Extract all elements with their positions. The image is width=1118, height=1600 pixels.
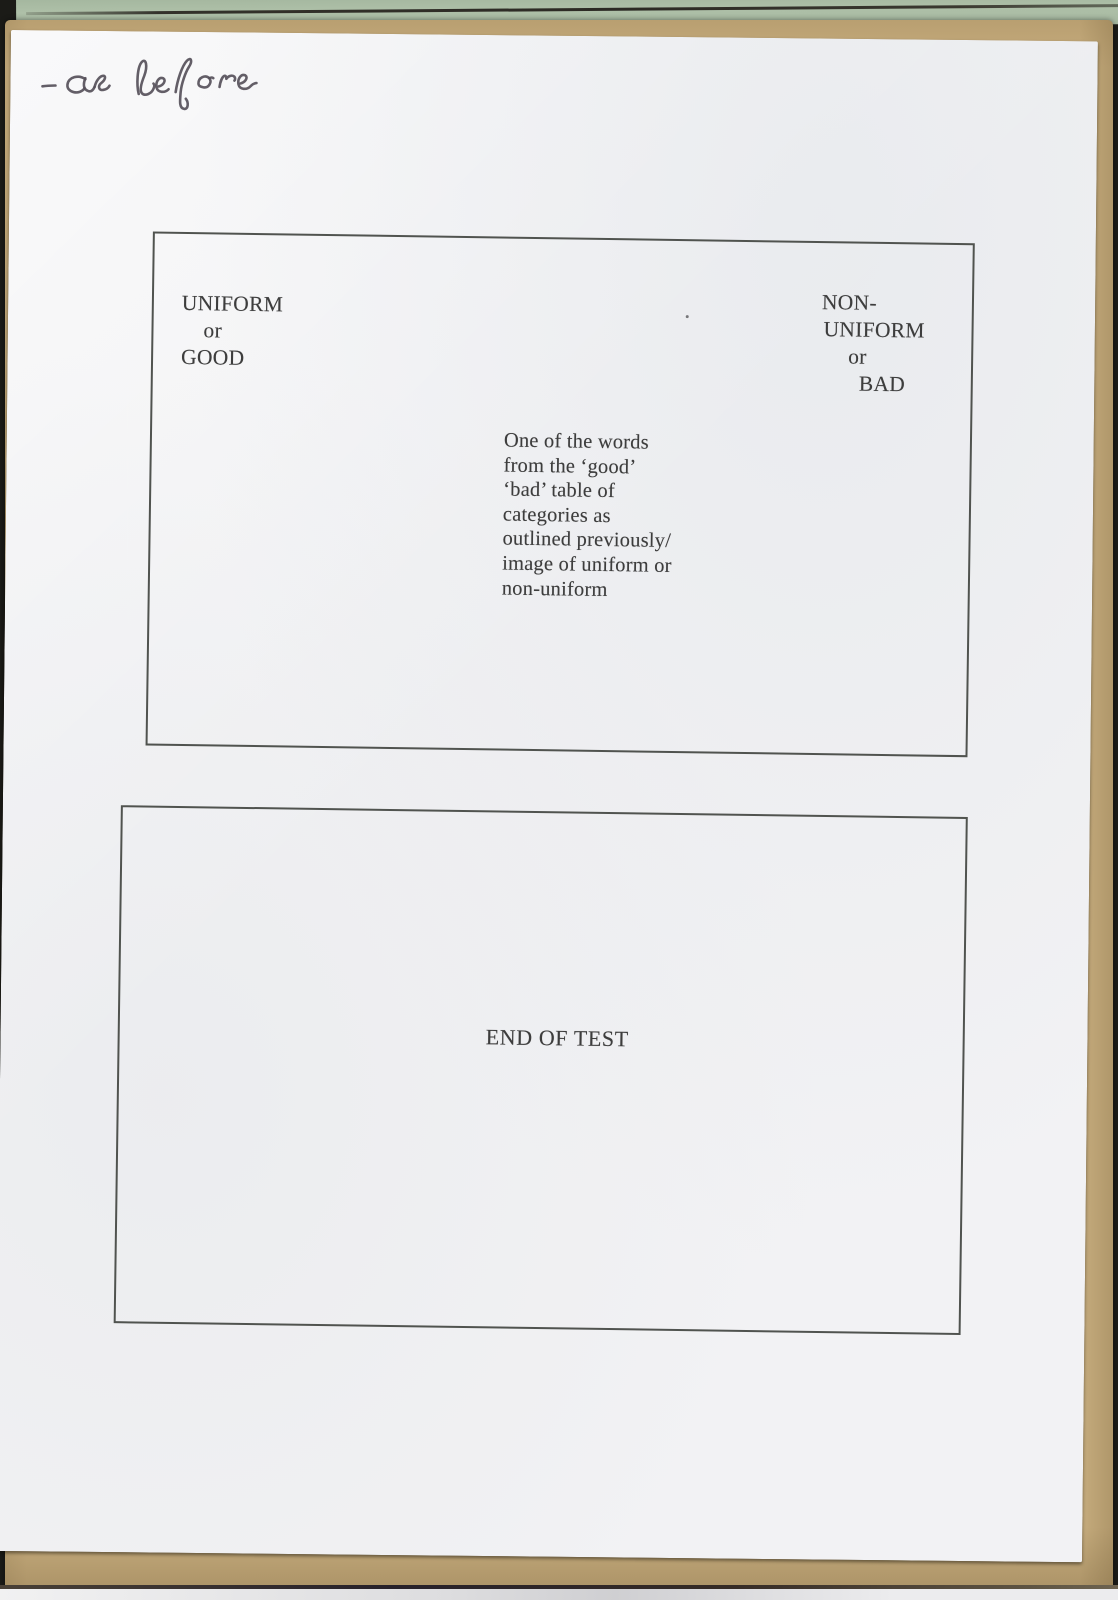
label-line: NON- [822,289,926,317]
underlying-page-edge [0,1589,1118,1600]
label-line: GOOD [181,344,283,372]
label-line: or [181,317,283,345]
stimulus-frame: UNIFORM or GOOD NON- UNIFORM or BAD One … [146,231,975,757]
label-line: UNIFORM [821,316,925,344]
note-line: One of the words [504,429,674,456]
right-category-label: NON- UNIFORM or BAD [821,289,926,398]
end-of-test-label: END OF TEST [486,1024,629,1052]
note-line: from the ‘good’ [503,453,673,480]
pen-ink-strokes [36,45,278,123]
handwritten-annotation: -as before [36,45,278,123]
left-category-label: UNIFORM or GOOD [181,290,283,372]
label-line: UNIFORM [182,290,284,318]
note-line: non-uniform [502,576,672,603]
note-line: ‘bad’ table of [503,478,673,505]
center-description-note: One of the words from the ‘good’ ‘bad’ t… [502,429,674,604]
scanned-document: -as before UNIFORM or GOOD NON- UNIFORM … [0,0,1118,1600]
note-line: image of uniform or [502,551,672,578]
end-of-test-frame: END OF TEST [114,805,968,1335]
note-line: outlined previously/ [502,527,672,554]
handwritten-annotation-text: -as before [37,122,38,123]
label-line: or [821,343,925,371]
scratch-line [26,4,1118,15]
note-line: categories as [503,502,673,529]
white-paper-sheet: -as before UNIFORM or GOOD NON- UNIFORM … [0,30,1098,1562]
label-line: BAD [821,370,925,398]
scan-speck [686,315,689,318]
